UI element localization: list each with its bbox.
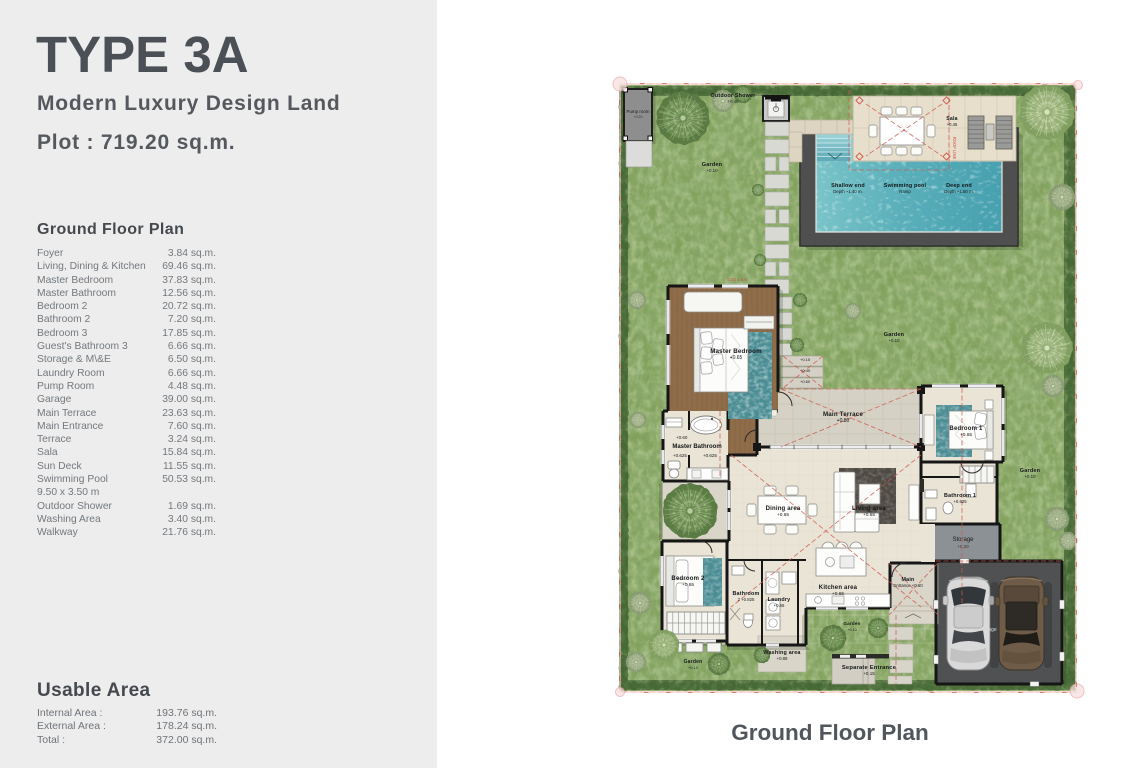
svg-text:+0.65: +0.65 xyxy=(863,512,875,518)
svg-text:+0.625: +0.625 xyxy=(953,499,967,504)
svg-text:Entrance +0.60: Entrance +0.60 xyxy=(893,583,923,588)
svg-text:+0.80: +0.80 xyxy=(837,418,850,424)
svg-text:+0.40: +0.40 xyxy=(728,99,739,104)
svg-text:2 +0.825: 2 +0.825 xyxy=(738,597,755,602)
svg-text:+0.65: +0.65 xyxy=(960,432,972,438)
svg-text:+0.20: +0.20 xyxy=(634,115,643,119)
svg-text:Master Bedroom: Master Bedroom xyxy=(710,348,762,355)
svg-text:+0.65: +0.65 xyxy=(774,603,785,608)
svg-text:ROOF LINE: ROOF LINE xyxy=(952,137,957,160)
svg-text:+0.15: +0.15 xyxy=(800,357,811,362)
svg-text:+0.65: +0.65 xyxy=(730,355,743,361)
svg-text:+0.89: +0.89 xyxy=(777,656,788,661)
svg-text:5.02 x 4.6: 5.02 x 4.6 xyxy=(727,277,747,282)
svg-text:Depth ~1.40 m.: Depth ~1.40 m. xyxy=(833,189,863,194)
svg-text:Garage: Garage xyxy=(980,627,997,633)
svg-text:Kitchen area: Kitchen area xyxy=(819,585,858,591)
svg-text:+0.15: +0.15 xyxy=(863,671,875,676)
svg-text:Storage: Storage xyxy=(952,537,974,543)
svg-text:Pump room: Pump room xyxy=(626,109,650,114)
svg-text:+0.10: +0.10 xyxy=(706,168,718,173)
svg-text:Main Terrace: Main Terrace xyxy=(823,411,863,418)
svg-text:+0.10: +0.10 xyxy=(1024,474,1036,479)
svg-text:Ramp: Ramp xyxy=(899,189,911,194)
svg-text:Bedroom 2: Bedroom 2 xyxy=(671,576,705,582)
svg-text:+0.10: +0.10 xyxy=(688,665,699,670)
svg-text:+0.60: +0.60 xyxy=(676,435,688,440)
svg-text:+0.60: +0.60 xyxy=(800,379,811,384)
svg-text:+0.625: +0.625 xyxy=(673,453,687,458)
svg-text:Garden: Garden xyxy=(843,621,860,626)
svg-text:Living area: Living area xyxy=(852,506,886,512)
svg-text:+0.65: +0.65 xyxy=(777,512,789,518)
svg-text:+0.20: +0.20 xyxy=(957,544,969,549)
svg-text:Depth ~1.50 m.: Depth ~1.50 m. xyxy=(944,189,974,194)
svg-text:Bedroom 1: Bedroom 1 xyxy=(949,426,983,432)
svg-text:+0.10: +0.10 xyxy=(847,628,856,632)
svg-text:+0.45: +0.45 xyxy=(947,122,958,127)
svg-text:+0.65: +0.65 xyxy=(832,591,844,597)
svg-text:+0.65: +0.65 xyxy=(682,582,694,588)
svg-text:+0.10: +0.10 xyxy=(888,338,900,343)
svg-text:+0.625: +0.625 xyxy=(703,453,717,458)
svg-text:Dining area: Dining area xyxy=(766,506,801,512)
svg-text:+0.40: +0.40 xyxy=(800,368,811,373)
svg-text:Master Bathroom: Master Bathroom xyxy=(672,444,721,450)
